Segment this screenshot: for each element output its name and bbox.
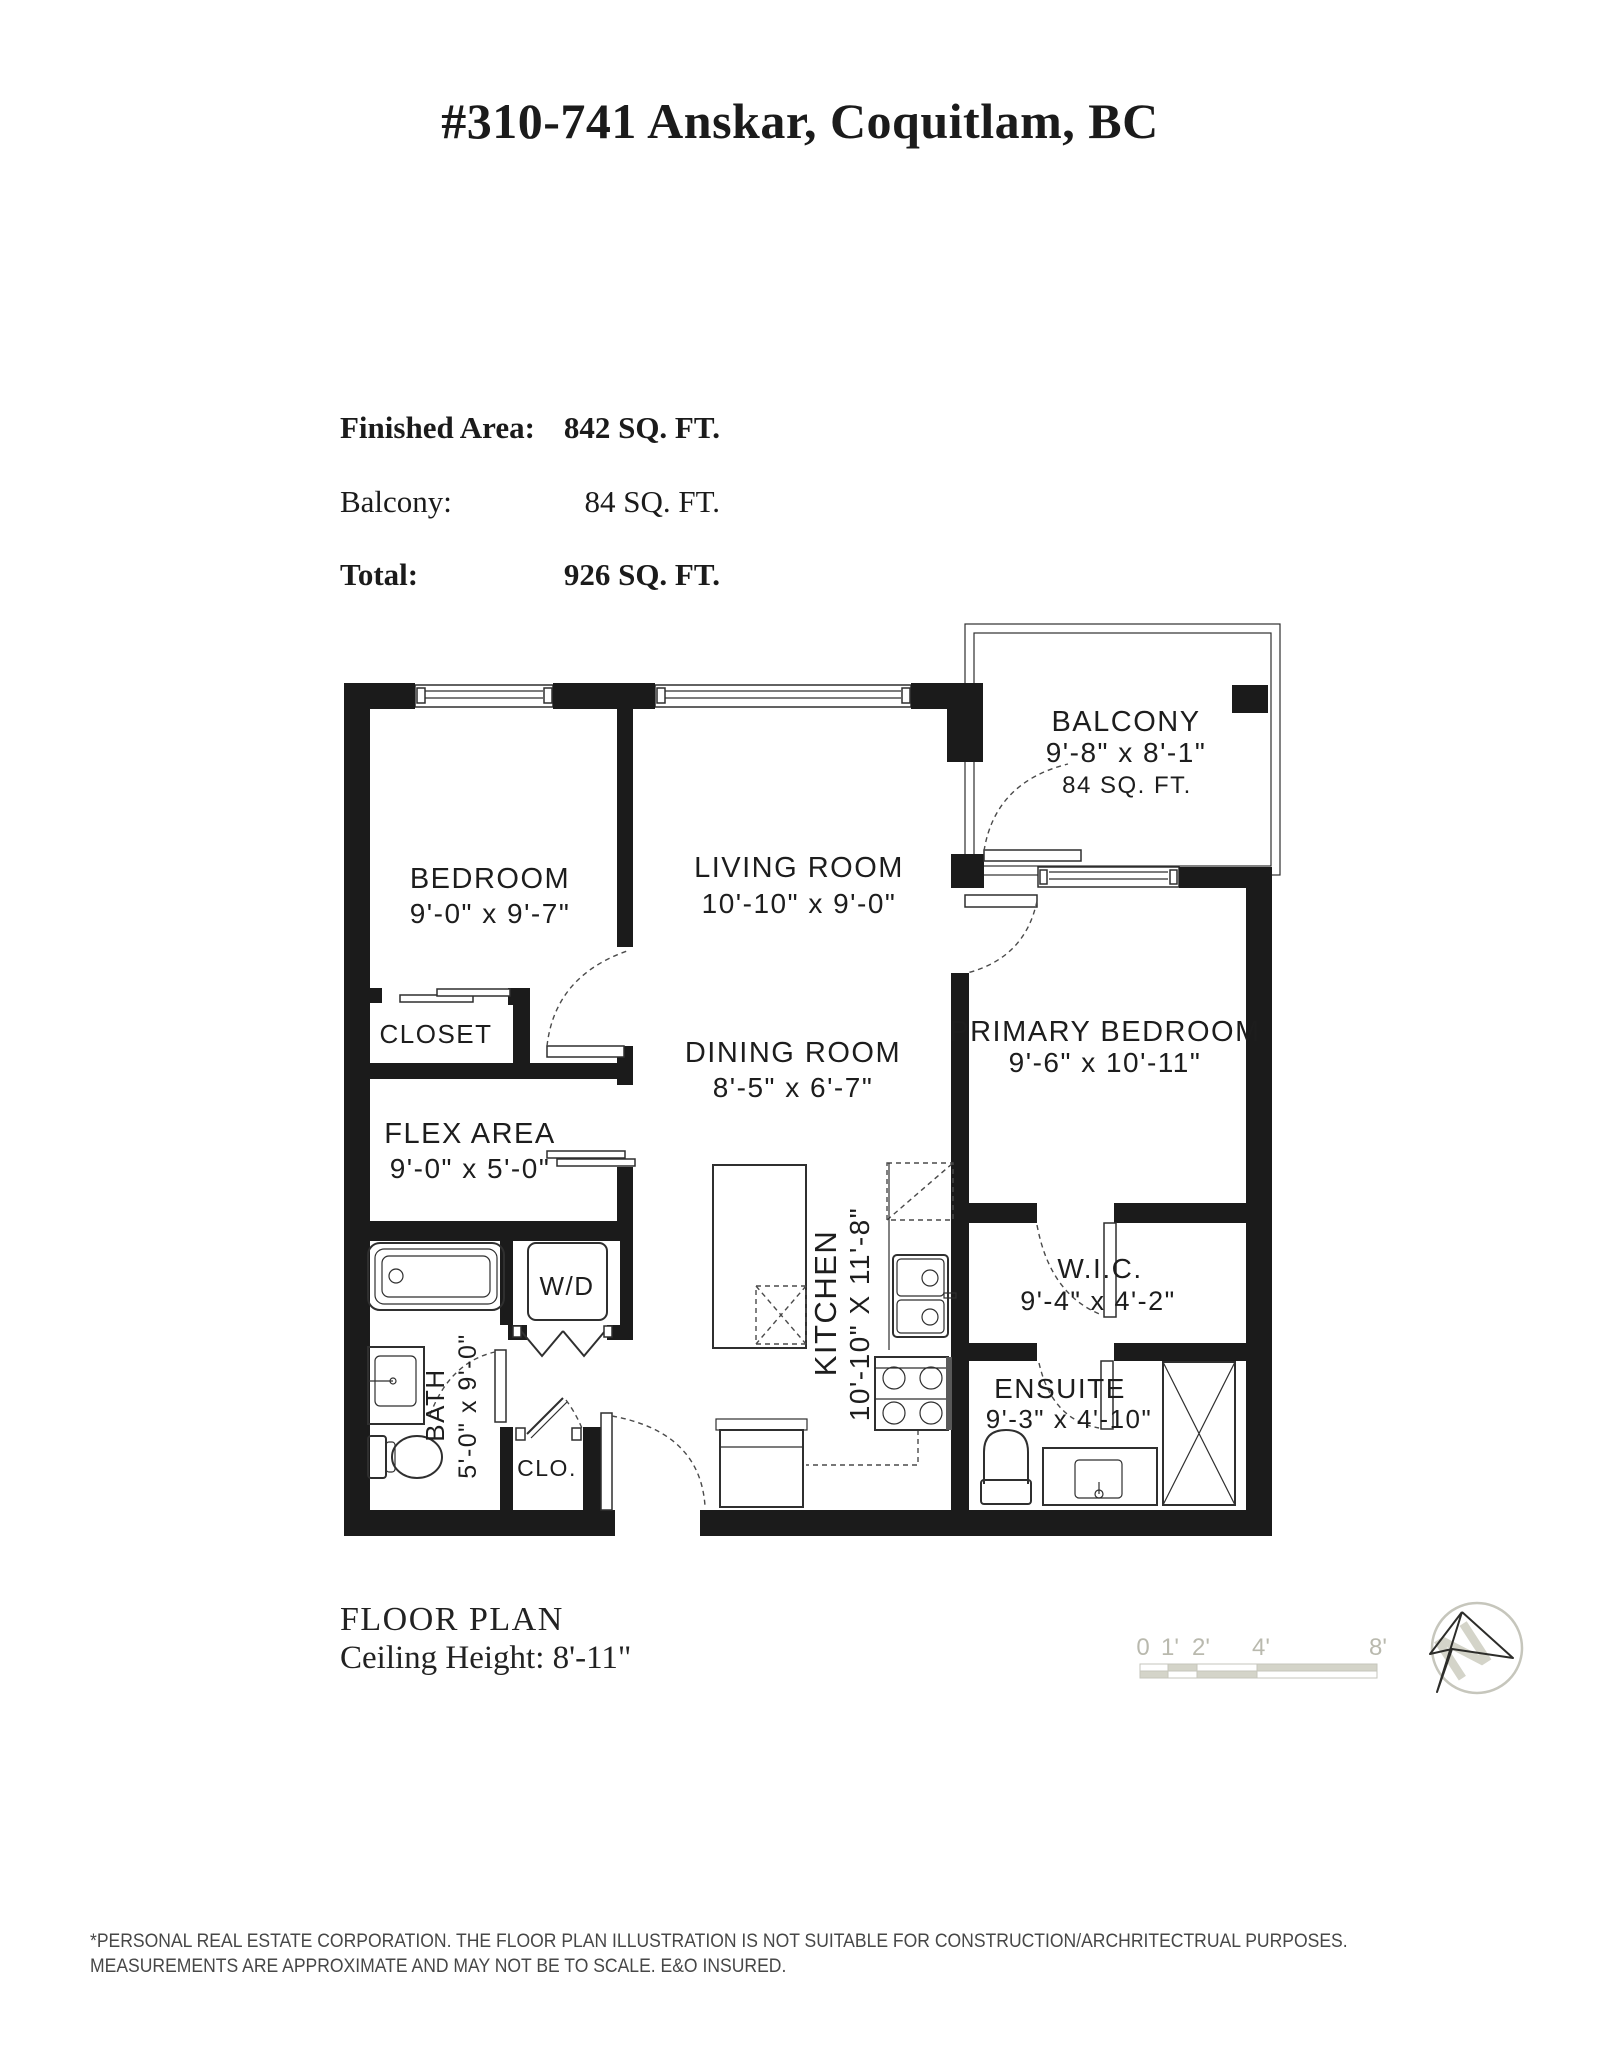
ceiling-height-label: Ceiling Height: 8'-11" xyxy=(340,1640,631,1677)
room-label-closet: CLOSET xyxy=(379,1019,492,1049)
label-washer-dryer: W/D xyxy=(539,1271,594,1301)
room-label-balcony: BALCONY xyxy=(1051,706,1200,738)
room-label-kitchen: KITCHEN xyxy=(808,1230,843,1377)
disclaimer: *PERSONAL REAL ESTATE CORPORATION. THE F… xyxy=(90,1929,1348,1979)
kitchen-sink xyxy=(893,1255,956,1337)
room-label-primary: PRIMARY BEDROOM xyxy=(949,1016,1260,1048)
entry-door xyxy=(601,1413,705,1510)
kitchen-island xyxy=(713,1165,806,1348)
room-dims-dining: 8'-5" x 6'-7" xyxy=(713,1072,874,1103)
summary-row-balcony: Balcony: 84 SQ. FT. xyxy=(340,484,720,520)
summary-row-finished: Finished Area: 842 SQ. FT. xyxy=(340,410,720,446)
balcony-area-value: 84 SQ. FT. xyxy=(584,484,720,520)
room-dims-wic: 9'-4" x 4'-2" xyxy=(1020,1286,1176,1316)
bedroom-door xyxy=(547,950,630,1057)
page-title: #310-741 Anskar, Coquitlam, BC xyxy=(0,92,1600,150)
scale-label-4: 4' xyxy=(1252,1634,1270,1661)
scale-label-0: 0 xyxy=(1136,1634,1149,1661)
finished-area-value: 842 SQ. FT. xyxy=(564,410,720,446)
primary-bedroom-door xyxy=(965,895,1037,973)
fixtures xyxy=(368,1163,1235,1507)
entry-appliance xyxy=(716,1419,807,1507)
closet-sliding-door xyxy=(400,989,510,1002)
room-dims-primary: 9'-6" x 10'-11" xyxy=(1009,1047,1202,1078)
bath-vanity-sink xyxy=(368,1347,424,1424)
scale-label-1: 1' xyxy=(1161,1634,1179,1661)
balcony-area-label: Balcony: xyxy=(340,484,452,520)
scale-bar: 0 1' 2' 4' 8' xyxy=(1136,1634,1387,1678)
room-dims-living: 10'-10" x 9'-0" xyxy=(702,888,897,919)
finished-area-label: Finished Area: xyxy=(340,410,535,446)
floor-plan-label: FLOOR PLAN xyxy=(340,1601,564,1639)
disclaimer-line-2: MEASUREMENTS ARE APPROXIMATE AND MAY NOT… xyxy=(90,1954,1348,1979)
summary-row-total: Total: 926 SQ. FT. xyxy=(340,557,720,593)
room-label-clo: CLO. xyxy=(517,1455,577,1481)
shower xyxy=(1163,1362,1235,1505)
room-label-living: LIVING ROOM xyxy=(694,852,904,884)
room-label-ensuite: ENSUITE xyxy=(994,1373,1126,1404)
room-label-bedroom: BEDROOM xyxy=(410,863,570,895)
room-area-balcony: 84 SQ. FT. xyxy=(1062,772,1192,799)
room-label-bath: BATH xyxy=(420,1368,450,1441)
flex-sliding-door xyxy=(547,1151,635,1166)
floor-plan: BEDROOM 9'-0" x 9'-7" LIVING ROOM 10'-10… xyxy=(320,600,1300,1560)
scale-and-compass: 0 1' 2' 4' 8' N xyxy=(1080,1580,1540,1720)
scale-label-2: 2' xyxy=(1192,1634,1210,1661)
room-labels: BEDROOM 9'-0" x 9'-7" LIVING ROOM 10'-10… xyxy=(379,706,1260,1481)
fridge xyxy=(887,1163,953,1220)
room-label-flex: FLEX AREA xyxy=(384,1118,555,1150)
ensuite-toilet xyxy=(981,1430,1031,1504)
room-label-dining: DINING ROOM xyxy=(685,1037,901,1069)
room-dims-kitchen: 10'-10" X 11'-8" xyxy=(844,1207,875,1421)
room-dims-bath: 5'-0" x 9'-0" xyxy=(454,1333,482,1478)
total-area-value: 926 SQ. FT. xyxy=(564,557,720,593)
living-room-window xyxy=(655,685,911,707)
bathtub xyxy=(368,1243,504,1310)
ensuite-vanity-sink xyxy=(1043,1448,1157,1505)
room-dims-flex: 9'-0" x 5'-0" xyxy=(390,1153,551,1184)
north-arrow-icon: N xyxy=(1422,1603,1522,1695)
room-dims-bedroom: 9'-0" x 9'-7" xyxy=(410,898,571,929)
primary-bedroom-window xyxy=(1038,867,1179,887)
wd-bifold-doors xyxy=(513,1326,612,1356)
total-area-label: Total: xyxy=(340,557,418,593)
room-label-wic: W.I.C. xyxy=(1057,1253,1142,1284)
scale-label-8: 8' xyxy=(1369,1634,1387,1661)
room-dims-ensuite: 9'-3" x 4'-10" xyxy=(986,1404,1152,1434)
clo-door xyxy=(516,1398,583,1440)
room-dims-balcony: 9'-8" x 8'-1" xyxy=(1046,737,1207,768)
stove xyxy=(875,1357,952,1430)
disclaimer-line-1: *PERSONAL REAL ESTATE CORPORATION. THE F… xyxy=(90,1929,1348,1954)
bedroom-window xyxy=(415,685,553,707)
